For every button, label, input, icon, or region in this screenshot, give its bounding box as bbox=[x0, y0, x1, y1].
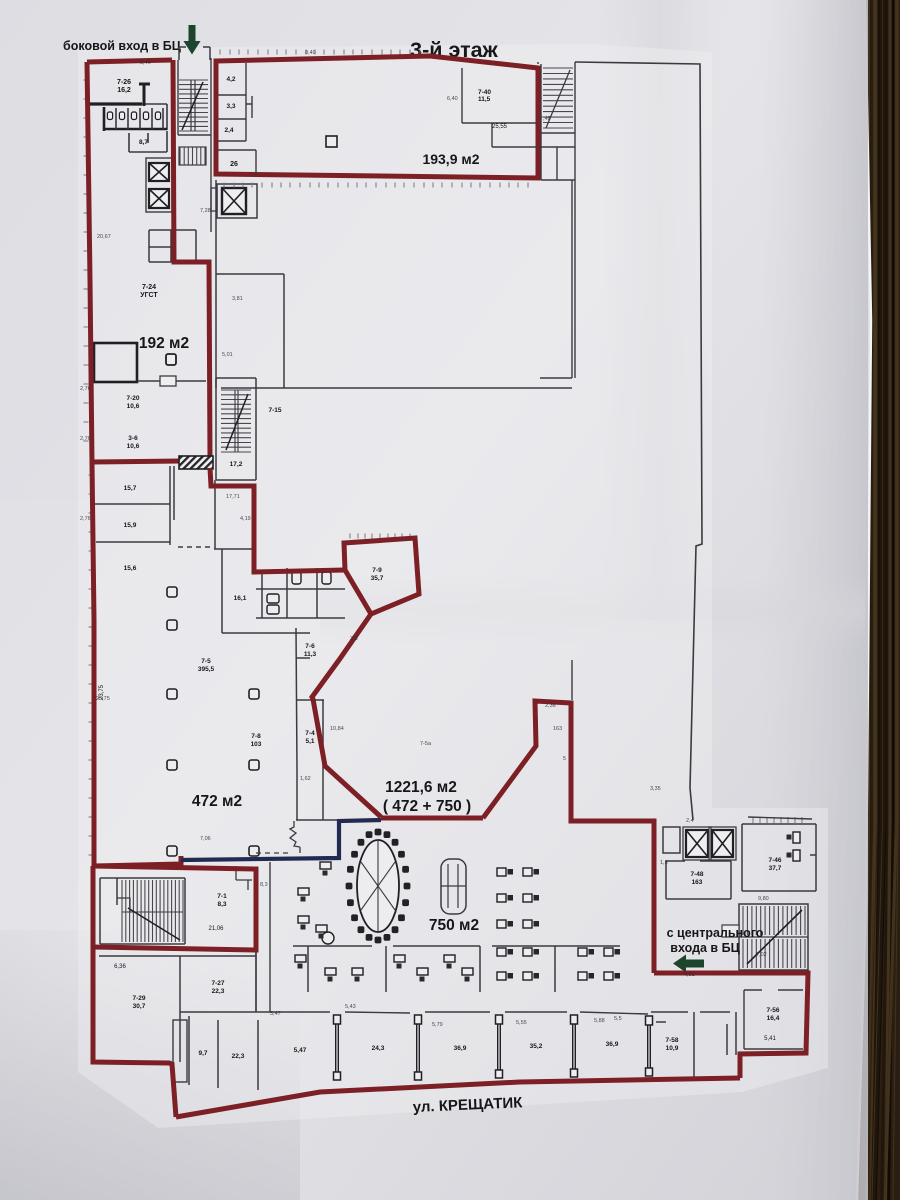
svg-text:5,5: 5,5 bbox=[614, 1016, 622, 1022]
svg-text:3,8: 3,8 bbox=[350, 636, 358, 642]
svg-text:4,19: 4,19 bbox=[240, 516, 251, 522]
svg-text:7-9: 7-9 bbox=[372, 567, 382, 574]
svg-text:7-40: 7-40 bbox=[478, 89, 491, 96]
svg-text:8,3: 8,3 bbox=[260, 882, 268, 888]
svg-text:193,9 м2: 193,9 м2 bbox=[422, 151, 479, 167]
svg-text:16,2: 16,2 bbox=[117, 87, 131, 94]
svg-text:5,55: 5,55 bbox=[516, 1020, 527, 1026]
svg-text:35,2: 35,2 bbox=[530, 1043, 543, 1050]
svg-text:5,47: 5,47 bbox=[270, 1011, 281, 1017]
svg-text:5: 5 bbox=[563, 756, 566, 762]
svg-text:1,62: 1,62 bbox=[300, 776, 311, 782]
svg-text:8,3: 8,3 bbox=[217, 901, 226, 908]
svg-text:15,7: 15,7 bbox=[124, 485, 137, 492]
svg-text:15,6: 15,6 bbox=[124, 565, 137, 572]
svg-text:7,06: 7,06 bbox=[200, 836, 211, 842]
svg-text:30,7: 30,7 bbox=[133, 1003, 146, 1010]
svg-text:2,4: 2,4 bbox=[224, 127, 233, 134]
svg-text:8,7: 8,7 bbox=[139, 139, 148, 146]
svg-text:7,48: 7,48 bbox=[540, 116, 551, 122]
svg-text:с центрального: с центрального bbox=[667, 926, 764, 940]
svg-text:7-56: 7-56 bbox=[766, 1007, 779, 1014]
svg-text:5,43: 5,43 bbox=[345, 1004, 356, 1010]
svg-text:4,2: 4,2 bbox=[226, 76, 235, 83]
svg-text:боковой вход в БЦ: боковой вход в БЦ bbox=[63, 39, 182, 53]
svg-text:4,31: 4,31 bbox=[684, 972, 695, 978]
svg-text:7-5а: 7-5а bbox=[420, 741, 432, 747]
svg-text:22,3: 22,3 bbox=[212, 988, 225, 995]
svg-text:2,4: 2,4 bbox=[686, 818, 694, 824]
svg-text:103: 103 bbox=[251, 741, 262, 748]
svg-text:5,1: 5,1 bbox=[305, 738, 314, 745]
svg-text:9,80: 9,80 bbox=[758, 896, 769, 902]
svg-text:36,9: 36,9 bbox=[606, 1041, 619, 1048]
svg-text:6,36: 6,36 bbox=[114, 964, 126, 970]
svg-text:7-4: 7-4 bbox=[305, 730, 315, 737]
svg-text:10,6: 10,6 bbox=[127, 443, 140, 450]
svg-text:5,79: 5,79 bbox=[432, 1022, 443, 1028]
svg-text:17,71: 17,71 bbox=[226, 494, 240, 500]
svg-text:26: 26 bbox=[230, 161, 238, 168]
svg-text:36,9: 36,9 bbox=[454, 1045, 467, 1052]
svg-text:7,02: 7,02 bbox=[756, 952, 767, 958]
svg-text:7-1: 7-1 bbox=[217, 893, 227, 900]
svg-text:3,35: 3,35 bbox=[650, 786, 661, 792]
svg-text:16,4: 16,4 bbox=[767, 1015, 780, 1022]
svg-text:УГСТ: УГСТ bbox=[140, 292, 158, 299]
svg-text:3,81: 3,81 bbox=[232, 296, 243, 302]
svg-text:163: 163 bbox=[692, 879, 703, 886]
svg-text:2,76: 2,76 bbox=[80, 516, 91, 522]
svg-text:10,6: 10,6 bbox=[127, 403, 140, 410]
svg-text:2,76: 2,76 bbox=[80, 436, 91, 442]
svg-text:24,3: 24,3 bbox=[372, 1045, 385, 1052]
svg-text:10,9: 10,9 bbox=[666, 1045, 679, 1052]
svg-text:7-20: 7-20 bbox=[126, 395, 139, 402]
svg-text:6,40: 6,40 bbox=[447, 96, 458, 102]
svg-text:5,01: 5,01 bbox=[222, 352, 233, 358]
svg-text:5,88: 5,88 bbox=[594, 1018, 605, 1024]
svg-text:7,28: 7,28 bbox=[200, 208, 211, 214]
svg-text:7-8: 7-8 bbox=[251, 733, 261, 740]
svg-text:192 м2: 192 м2 bbox=[139, 335, 189, 352]
svg-text:11,3: 11,3 bbox=[304, 651, 317, 658]
svg-text:17,2: 17,2 bbox=[230, 461, 243, 468]
svg-text:163: 163 bbox=[553, 726, 562, 732]
svg-text:входа в БЦ: входа в БЦ bbox=[670, 941, 740, 955]
svg-text:750 м2: 750 м2 bbox=[429, 917, 479, 934]
svg-text:( 472 + 750 ): ( 472 + 750 ) bbox=[383, 798, 471, 815]
svg-text:5,41: 5,41 bbox=[764, 1036, 776, 1042]
svg-text:10,84: 10,84 bbox=[330, 726, 344, 732]
svg-text:2,36: 2,36 bbox=[545, 703, 556, 709]
svg-text:35,7: 35,7 bbox=[371, 575, 384, 582]
svg-text:7-26: 7-26 bbox=[117, 79, 131, 86]
svg-text:22,3: 22,3 bbox=[232, 1053, 245, 1060]
svg-text:7-48: 7-48 bbox=[690, 871, 703, 878]
svg-text:395,5: 395,5 bbox=[198, 666, 215, 673]
svg-text:7-46: 7-46 bbox=[768, 857, 781, 864]
svg-text:7-15: 7-15 bbox=[268, 407, 281, 414]
svg-text:5,47: 5,47 bbox=[294, 1047, 307, 1054]
svg-text:7-24: 7-24 bbox=[142, 284, 156, 291]
svg-text:7-5: 7-5 bbox=[201, 658, 211, 665]
svg-text:21,06: 21,06 bbox=[208, 926, 224, 932]
svg-text:37,7: 37,7 bbox=[769, 865, 782, 872]
svg-text:25,55: 25,55 bbox=[492, 124, 508, 130]
svg-text:7-6: 7-6 bbox=[305, 643, 315, 650]
svg-text:7-58: 7-58 bbox=[665, 1037, 678, 1044]
svg-text:1221,6 м2: 1221,6 м2 bbox=[385, 779, 457, 796]
svg-text:2,76: 2,76 bbox=[80, 386, 91, 392]
svg-text:472 м2: 472 м2 bbox=[192, 793, 242, 810]
svg-text:8,40: 8,40 bbox=[305, 50, 316, 56]
svg-text:1,5: 1,5 bbox=[660, 860, 668, 866]
svg-text:20,67: 20,67 bbox=[97, 234, 111, 240]
svg-text:5,46: 5,46 bbox=[140, 60, 151, 66]
svg-text:15,9: 15,9 bbox=[124, 522, 137, 529]
svg-text:7-29: 7-29 bbox=[132, 995, 145, 1002]
svg-text:7-27: 7-27 bbox=[211, 980, 224, 987]
svg-text:9,7: 9,7 bbox=[198, 1050, 207, 1057]
svg-text:16,1: 16,1 bbox=[234, 595, 247, 602]
svg-text:11,5: 11,5 bbox=[478, 96, 491, 103]
svg-text:23,75: 23,75 bbox=[96, 696, 110, 702]
svg-text:3-6: 3-6 bbox=[128, 435, 138, 442]
svg-text:3,3: 3,3 bbox=[226, 103, 235, 110]
